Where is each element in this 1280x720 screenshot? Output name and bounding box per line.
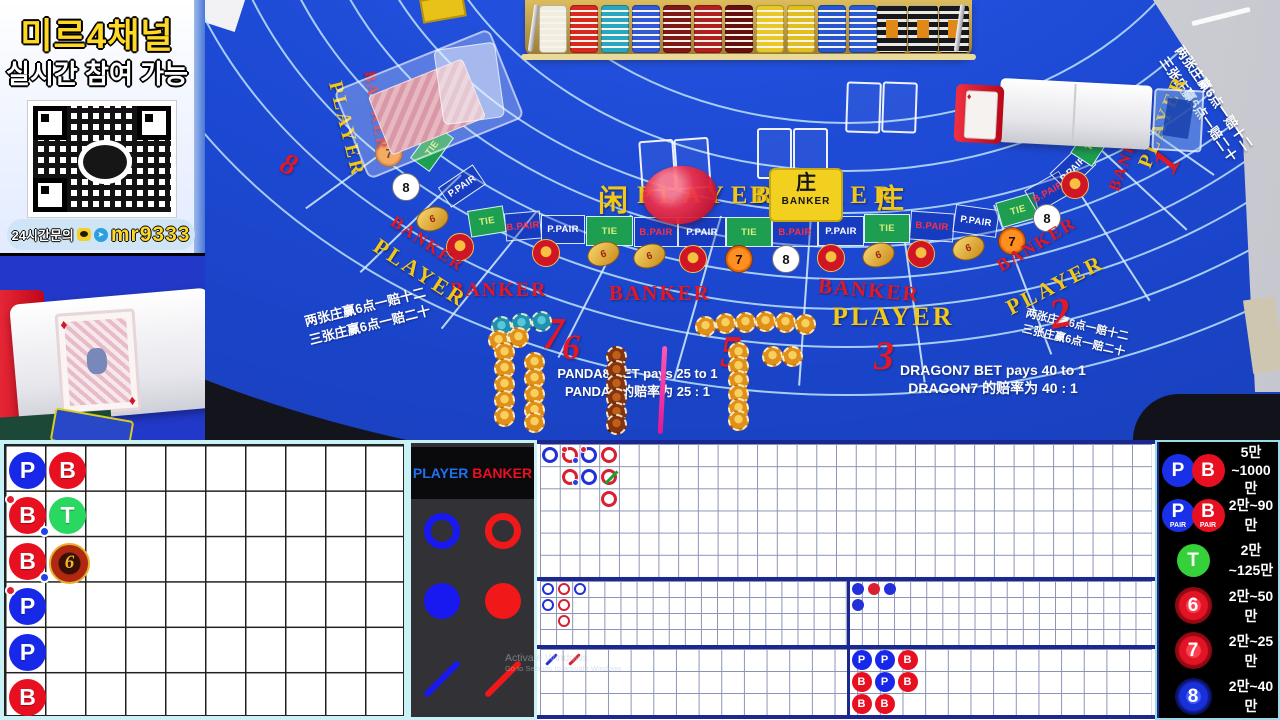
legend-filled-row bbox=[411, 583, 534, 619]
sidebet-dragon-icon bbox=[817, 244, 845, 272]
contact-id: mr9333 bbox=[111, 223, 191, 247]
big-eye-road-grid bbox=[540, 581, 1152, 645]
bet-limits-panel: PB5만~1000만PPAIRBPAIR2만~90만T2만~125만62만~50… bbox=[1155, 440, 1280, 720]
dragon7-line1: DRAGON7 BET pays 40 to 1 bbox=[883, 362, 1103, 378]
banker-cn-label: 庄 bbox=[877, 177, 904, 216]
limit-icon-sub: PAIR bbox=[1200, 522, 1216, 529]
limit-icons: 8 bbox=[1160, 678, 1226, 715]
bet-cell-tie: TIE bbox=[467, 205, 507, 237]
seat-number: 6 bbox=[562, 326, 580, 368]
tray-chip-column bbox=[818, 5, 846, 53]
banker-slash-icon bbox=[484, 660, 522, 698]
limit-icons: 7 bbox=[1160, 632, 1226, 669]
limit-icons: T bbox=[1160, 544, 1226, 577]
betting-chip bbox=[755, 311, 776, 332]
tray-plaque-column bbox=[877, 5, 907, 53]
limit-icons: PPAIRBPAIR bbox=[1160, 499, 1226, 532]
minibead-result-B: B bbox=[852, 694, 872, 714]
tray-chip-column bbox=[849, 5, 877, 53]
minibead-result-B: B bbox=[898, 650, 918, 670]
betting-chip bbox=[606, 414, 627, 435]
qr-finder-icon bbox=[137, 106, 171, 140]
player-cn-label: 闲 bbox=[598, 176, 628, 220]
limit-range: 2만~40만 bbox=[1226, 676, 1276, 716]
road-divider bbox=[847, 581, 850, 645]
tray-plaque-column bbox=[908, 5, 938, 53]
bead-road-panel: PBBPPBBT6 bbox=[0, 440, 408, 720]
limit-icon-letter: 7 bbox=[1188, 641, 1199, 660]
dragon7-paytable: DRAGON7 BET pays 40 to 1 DRAGON7 的赔率为 40… bbox=[883, 362, 1103, 398]
betting-chip bbox=[735, 312, 756, 333]
limit-t-icon: T bbox=[1177, 544, 1210, 577]
smallroad-result-P bbox=[852, 599, 864, 611]
sidebet-panda-icon: 8 bbox=[772, 245, 800, 273]
betting-chip bbox=[795, 314, 816, 335]
legend-panel: PLAYER BANKER bbox=[408, 440, 537, 720]
qr-code bbox=[27, 100, 177, 218]
banker-plaque: 庄 BANKER bbox=[769, 168, 843, 222]
bead-result-P: P bbox=[9, 452, 46, 489]
limit-range: 2만~50만 bbox=[1226, 586, 1276, 626]
banker-pair-dot bbox=[5, 585, 16, 596]
stream-frame: 미르4채널 실시간 참여 가능 24시간문의 ➤ mr9333 ♦♦ bbox=[0, 0, 1280, 720]
limit-icon-letter: P bbox=[1172, 461, 1185, 480]
bet-cell-bpair: B.PAIR bbox=[909, 211, 955, 243]
player-hollow-circle-icon bbox=[424, 513, 460, 549]
channel-title: 미르4채널 bbox=[0, 8, 194, 59]
betting-chip bbox=[782, 346, 803, 367]
table-video: ♦ 闲 PLAYER BANKER 庄 庄 BANKER PANDA8 BET … bbox=[205, 0, 1280, 440]
betting-chip bbox=[775, 312, 796, 333]
qr-finder-icon bbox=[33, 178, 67, 212]
derived-roads-panel: PPBBPBBB bbox=[537, 440, 1155, 720]
sidebet-seven-icon: 7 bbox=[725, 245, 753, 273]
tray-chip-column bbox=[570, 5, 598, 53]
limit-icon-sub: PAIR bbox=[1170, 522, 1186, 529]
bigeye-result-P bbox=[542, 583, 554, 595]
limit-icons: PB bbox=[1160, 454, 1226, 487]
limit-range: 5만~1000만 bbox=[1226, 442, 1276, 498]
tray-chip-column bbox=[663, 5, 691, 53]
chip-tray bbox=[525, 0, 972, 58]
tray-chip-column bbox=[787, 5, 815, 53]
cockroach-road-grid bbox=[540, 649, 1152, 715]
shoe-card: ♦ bbox=[964, 90, 998, 140]
bead-result-B: B bbox=[9, 679, 46, 716]
bead-result-B: B bbox=[9, 497, 46, 534]
card-spot bbox=[845, 81, 882, 133]
player-pair-dot bbox=[39, 572, 50, 583]
minibead-result-P: P bbox=[875, 672, 895, 692]
betting-chip bbox=[715, 313, 736, 334]
plaque-label bbox=[917, 20, 929, 38]
contact-label: 24시간문의 bbox=[12, 225, 74, 244]
limit-icon-letter: 8 bbox=[1188, 687, 1199, 706]
betting-chip bbox=[524, 412, 545, 433]
smallroad-result-P bbox=[852, 583, 864, 595]
sidebet-panda-icon: 8 bbox=[392, 173, 420, 201]
limit-7-icon: 7 bbox=[1175, 632, 1212, 669]
limit-row: 62만~50만 bbox=[1160, 584, 1276, 628]
minibead-result-P: P bbox=[875, 650, 895, 670]
minibead-result-P: P bbox=[852, 650, 872, 670]
minibead-result-B: B bbox=[875, 694, 895, 714]
road-divider bbox=[847, 649, 850, 715]
limit-range: 2만~125만 bbox=[1226, 540, 1276, 580]
bigroad-result-P bbox=[542, 447, 558, 463]
sidebet-dragon-icon bbox=[1061, 171, 1089, 199]
betting-chip bbox=[494, 406, 515, 427]
legend-banker-label: BANKER bbox=[472, 465, 532, 481]
limit-range: 2만~90만 bbox=[1226, 495, 1276, 535]
big-road-grid bbox=[540, 444, 1152, 577]
banker-hollow-circle-icon bbox=[485, 513, 521, 549]
bead-result-B: B bbox=[49, 452, 86, 489]
channel-subtitle: 실시간 참여 가능 bbox=[0, 54, 194, 91]
bead-result-P: P bbox=[9, 634, 46, 671]
limit-row: T2만~125만 bbox=[1160, 538, 1276, 582]
tray-chip-column bbox=[756, 5, 784, 53]
scoreboard-strip: PBBPPBBT6 PLAYER BANKER bbox=[0, 440, 1280, 720]
limit-b-icon: BPAIR bbox=[1192, 499, 1225, 532]
limit-icon-letter: B bbox=[1201, 502, 1215, 521]
bigeye-result-P bbox=[542, 599, 554, 611]
sidebet-dragon-icon bbox=[679, 245, 707, 273]
bet-cell-bpair: B.PAIR bbox=[504, 210, 542, 241]
bead-result-P: P bbox=[9, 588, 46, 625]
tray-chip-column bbox=[539, 5, 567, 53]
banker-pair-dot bbox=[5, 494, 16, 505]
limit-icon-letter: 6 bbox=[1188, 596, 1199, 615]
legend-player-label: PLAYER bbox=[413, 465, 469, 481]
limit-row: PB5만~1000만 bbox=[1160, 448, 1276, 492]
qr-finder-icon bbox=[33, 106, 67, 140]
bet-cell-tie: TIE bbox=[726, 217, 772, 247]
bigroad-result-B bbox=[562, 469, 578, 485]
limit-row: 72만~25만 bbox=[1160, 629, 1276, 673]
limit-icon-letter: P bbox=[1172, 502, 1185, 521]
limit-b-icon: B bbox=[1192, 454, 1225, 487]
telegram-icon: ➤ bbox=[94, 228, 108, 242]
card-shoe: ♦ bbox=[953, 74, 1200, 159]
plaque-label bbox=[886, 20, 898, 38]
tray-chip-column bbox=[725, 5, 753, 53]
chat-bubble-icon bbox=[78, 140, 132, 184]
player-pair-dot bbox=[572, 457, 579, 464]
limit-icons: 6 bbox=[1160, 587, 1226, 624]
betting-chip bbox=[531, 311, 552, 332]
player-arc-label: PLAYER bbox=[832, 302, 955, 332]
table-rim-right bbox=[1133, 394, 1280, 440]
sidebar-edge-strip bbox=[194, 0, 205, 253]
seat-number: 3 bbox=[874, 332, 894, 379]
promo-sidebar: 미르4채널 실시간 참여 가능 24시간문의 ➤ mr9333 bbox=[0, 0, 205, 253]
sidebet-dragon-icon bbox=[532, 239, 560, 267]
tray-chip-column bbox=[601, 5, 629, 53]
bigroad-result-B bbox=[562, 447, 578, 463]
limit-range: 2만~25만 bbox=[1226, 631, 1276, 671]
plaque-cn: 庄 bbox=[771, 170, 841, 196]
bet-cell-tie: TIE bbox=[864, 214, 910, 243]
legend-hollow-row bbox=[411, 513, 534, 549]
dragon7-line2: DRAGON7 的赔率为 40 : 1 bbox=[883, 378, 1103, 398]
banker-pair-dot bbox=[580, 446, 587, 453]
limit-row: PPAIRBPAIR2만~90만 bbox=[1160, 493, 1276, 537]
betting-chip bbox=[695, 316, 716, 337]
limit-6-icon: 6 bbox=[1175, 587, 1212, 624]
player-slash-icon bbox=[423, 660, 461, 698]
betting-chip bbox=[728, 410, 749, 431]
bet-cell-ppair: P.PAIR bbox=[952, 204, 999, 238]
limit-row: 82만~40만 bbox=[1160, 674, 1276, 718]
banker-arc-label: BANKER bbox=[609, 281, 711, 306]
face-card: ♦♦ bbox=[55, 308, 142, 415]
tray-rail bbox=[528, 4, 540, 52]
minibead-result-B: B bbox=[898, 672, 918, 692]
shoe-closeup-inset: ♦♦ bbox=[0, 256, 205, 440]
legend-slash-row bbox=[411, 655, 534, 703]
minibead-result-B: B bbox=[852, 672, 872, 692]
sidebet-dragon-icon bbox=[907, 240, 935, 268]
limit-8-icon: 8 bbox=[1175, 678, 1212, 715]
player-pair-dot bbox=[572, 479, 579, 486]
player-filled-circle-icon bbox=[424, 583, 460, 619]
kakao-icon bbox=[77, 228, 91, 241]
bead-result-L6: 6 bbox=[49, 543, 90, 584]
betting-chip bbox=[762, 346, 783, 367]
contact-banner: 24시간문의 ➤ mr9333 bbox=[7, 219, 195, 250]
limit-icon-letter: B bbox=[1201, 461, 1215, 480]
limit-p-icon: P bbox=[1162, 454, 1195, 487]
banker-pair-dot bbox=[561, 446, 568, 453]
bead-result-B: B bbox=[9, 543, 46, 580]
tray-chip-column bbox=[632, 5, 660, 53]
limit-p-icon: PPAIR bbox=[1162, 499, 1195, 532]
legend-header: PLAYER BANKER bbox=[411, 447, 534, 499]
banker-filled-circle-icon bbox=[485, 583, 521, 619]
limit-icon-letter: T bbox=[1187, 551, 1199, 570]
tray-chip-column bbox=[694, 5, 722, 53]
card-spot bbox=[881, 81, 918, 133]
plaque-en: BANKER bbox=[771, 196, 841, 207]
